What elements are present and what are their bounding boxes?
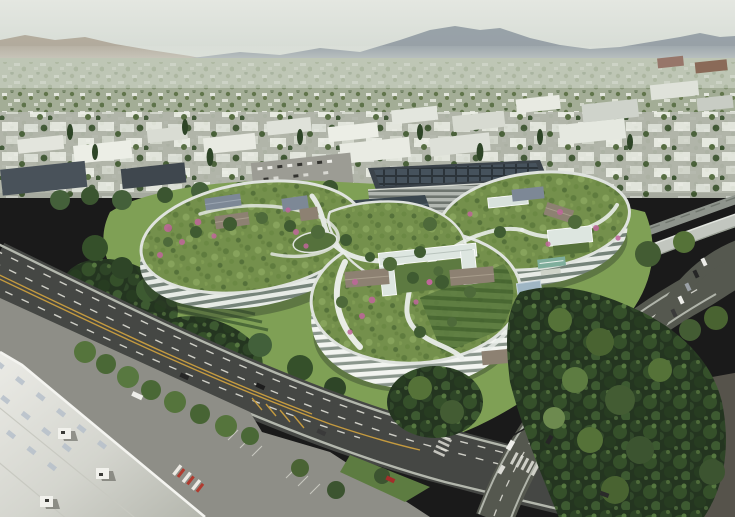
parking-tree: [327, 481, 345, 499]
intersection-corner-grove: [387, 366, 483, 438]
courtyard-east: [547, 226, 593, 256]
parking-tree: [291, 459, 309, 477]
tree: [440, 400, 464, 424]
valley-haze: [0, 58, 735, 88]
pavilion: [299, 207, 318, 221]
aerial-photo: Aerial rendering of a three-lobed office…: [0, 0, 735, 517]
tree: [408, 376, 432, 400]
